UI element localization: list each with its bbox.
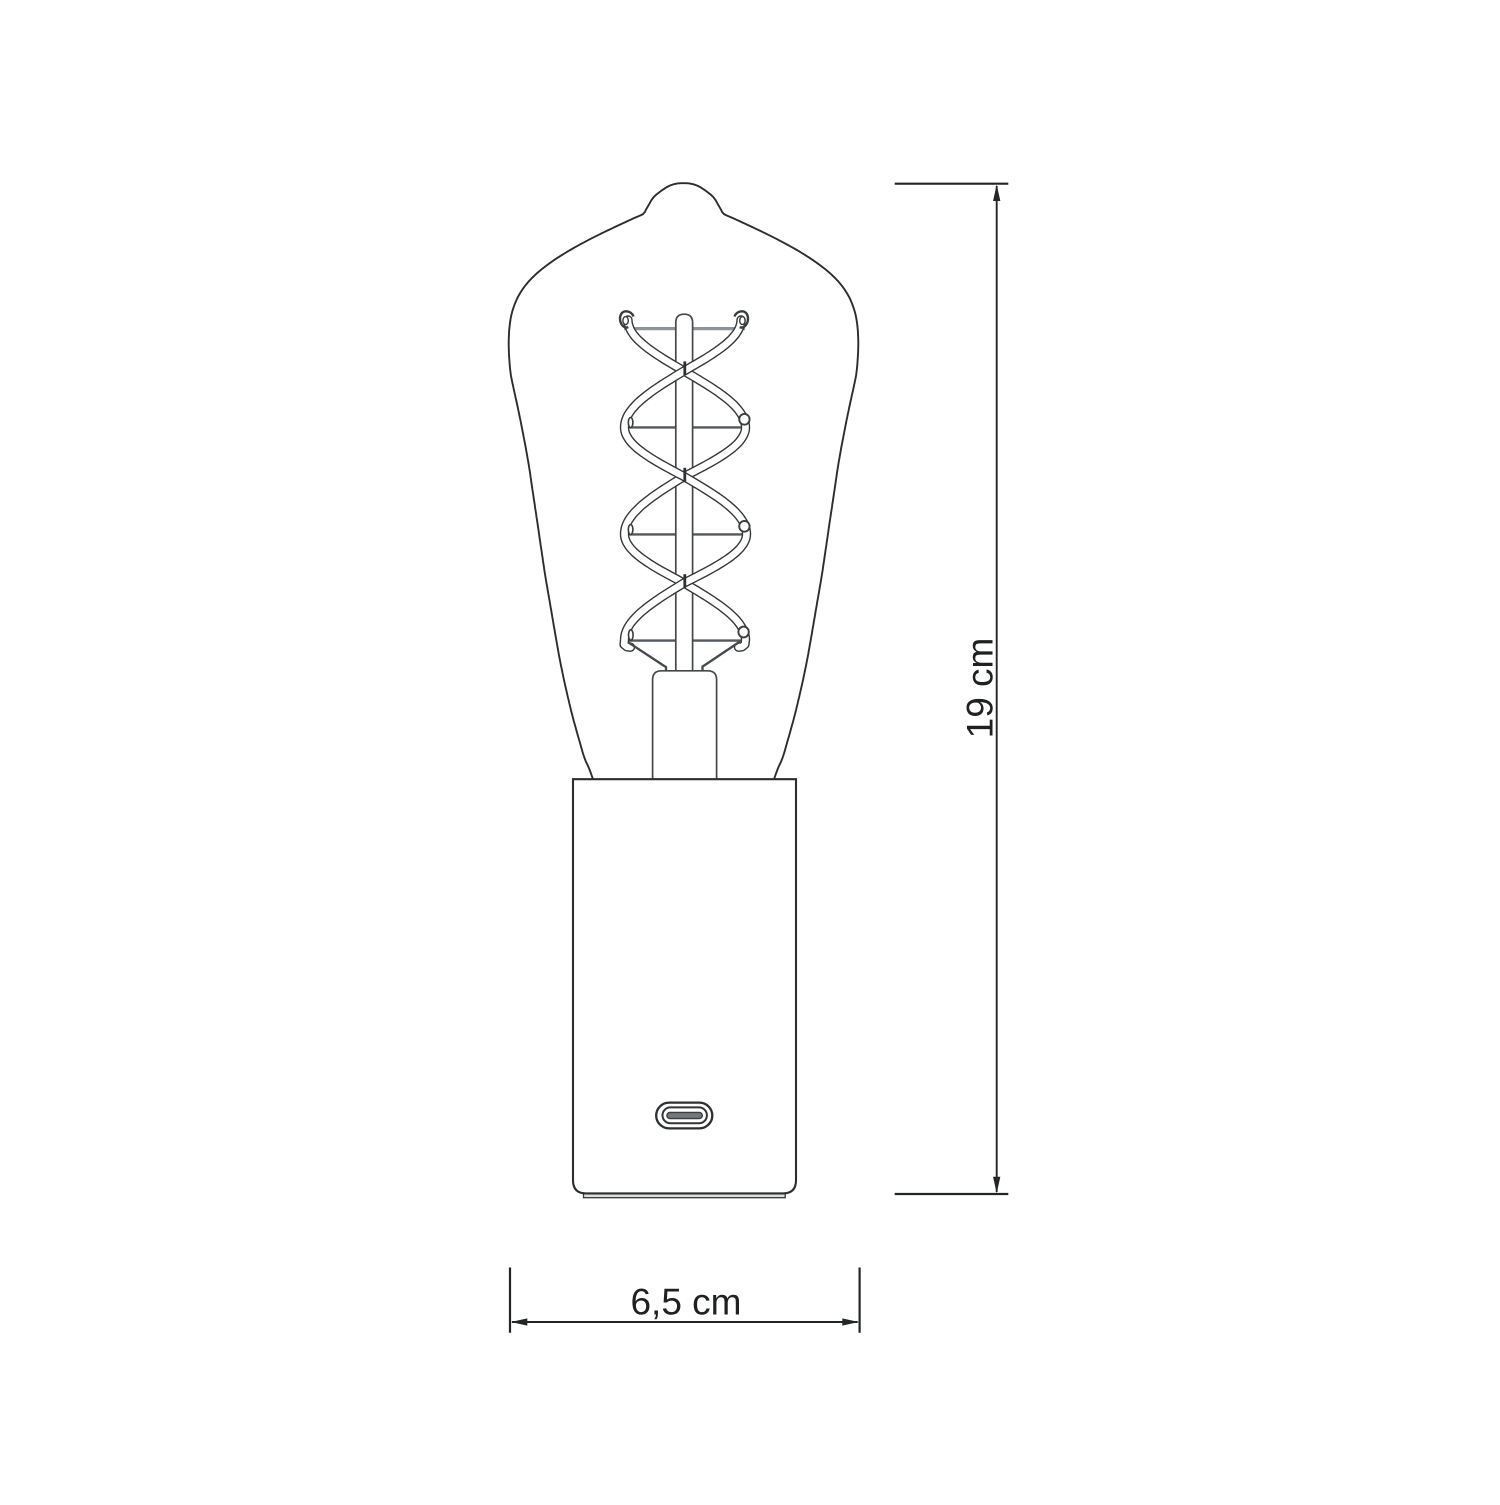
svg-text:6,5 cm: 6,5 cm	[630, 1282, 741, 1323]
svg-text:19 cm: 19 cm	[960, 638, 1001, 739]
